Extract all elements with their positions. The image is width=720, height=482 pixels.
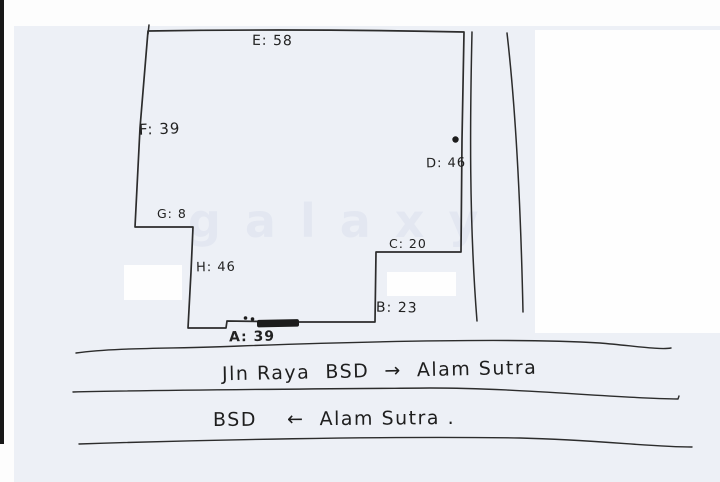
plot-outline xyxy=(135,30,464,328)
scan-page: galaxy E: 58 F: 39 G: 8 H: 46 A: 39 B: 2… xyxy=(0,0,720,482)
side-label-c: C: 20 xyxy=(389,236,427,251)
survey-dot xyxy=(452,136,458,142)
side-label-h: H: 46 xyxy=(196,260,236,276)
road-edge-line-2 xyxy=(73,388,679,399)
road-edge-line-1 xyxy=(76,340,671,353)
entrance-bar xyxy=(257,319,299,327)
side-label-a: A: 39 xyxy=(229,329,275,346)
side-label-e: E: 58 xyxy=(252,33,293,49)
corner-overshoot-tick xyxy=(148,25,149,34)
boundary-line-inner xyxy=(471,32,477,321)
boundary-line-outer xyxy=(507,33,523,312)
small-dot-2 xyxy=(251,317,255,321)
street-label-bottom: BSD ← Alam Sutra . xyxy=(213,407,455,431)
side-label-f: F: 39 xyxy=(139,119,181,138)
side-label-d: D: 46 xyxy=(426,156,466,172)
side-label-g: G: 8 xyxy=(157,206,187,221)
small-dot-1 xyxy=(244,316,248,320)
road-edge-line-3 xyxy=(79,437,692,447)
side-label-b: B: 23 xyxy=(376,300,418,317)
